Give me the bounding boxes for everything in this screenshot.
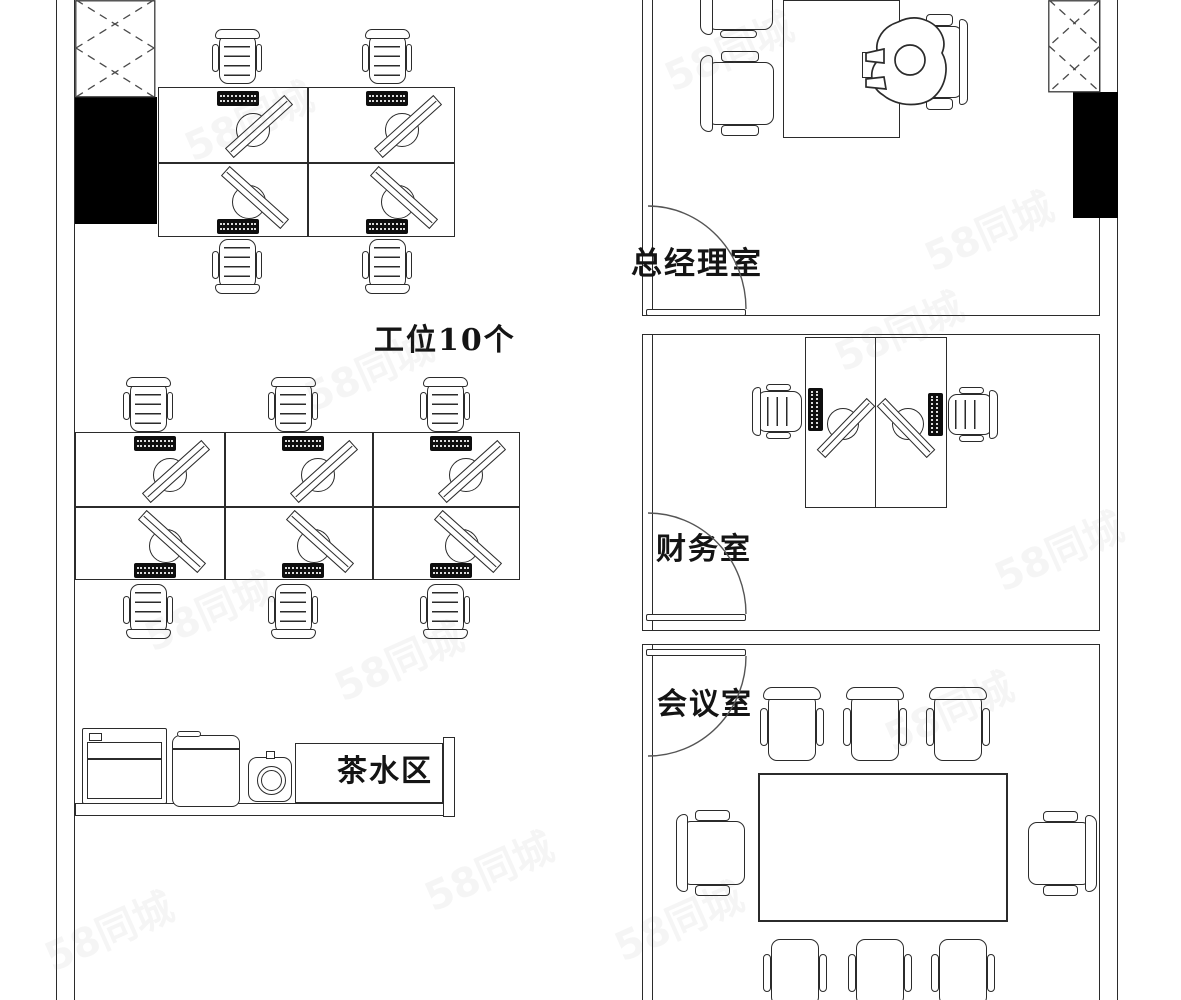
meeting-chair [926,687,990,763]
meeting-chair [1027,811,1097,896]
workstation [224,433,372,507]
meeting-chair [848,937,912,1000]
desk-cluster-top [158,87,455,237]
floor-plan: 工位10个 茶水区 [0,0,1181,1000]
workstations-area-label: 工位10个 [374,326,516,356]
meeting-chair [931,937,995,1000]
office-chair [268,377,318,433]
counter-end-panel [443,737,455,817]
door-leaf-gm [646,309,746,316]
wall-left [56,0,75,1000]
gm-desk-paper [862,52,884,78]
keyboard-icon [366,219,408,234]
office-chair [420,583,470,639]
boiler-handle [177,731,201,737]
fridge-handle [89,733,102,741]
wall-finance-meeting [642,630,1100,645]
door-leaf-meeting [646,649,746,656]
meeting-chair [843,687,907,763]
tea-counter [75,803,455,816]
sink-basin-inner [261,770,282,791]
workstation [76,433,224,507]
keyboard-icon [134,436,176,451]
workstation [372,507,520,581]
workstation [76,507,224,581]
workstation [308,163,456,237]
sink-faucet [266,751,275,759]
boiler-lid-line [173,748,239,750]
wall-black-right [1073,92,1118,218]
executive-chair [914,14,968,110]
office-chair [947,387,998,442]
office-chair [752,384,803,439]
office-chair [123,377,173,433]
keyboard-icon [430,436,472,451]
sink [248,757,292,802]
water-boiler [172,735,240,807]
desk-cluster-middle [75,432,520,580]
keyboard-icon [217,91,259,106]
keyboard-icon [217,219,259,234]
gm-office-label: 总经理室 [631,249,763,280]
hatch-opening-right [1049,0,1100,92]
workstation [159,163,307,237]
office-chair [268,583,318,639]
tea-area-label: 茶水区 [337,757,433,787]
wall-gm-finance [642,315,1100,335]
keyboard-icon [134,563,176,578]
office-chair [420,377,470,433]
keyboard-icon [282,436,324,451]
watermark: 58同城 [914,175,1062,283]
workstation [372,433,520,507]
keyboard-icon [928,393,943,436]
meeting-chair [760,687,824,763]
workstation [159,88,307,162]
office-chair [362,29,412,85]
workstation [308,88,456,162]
fridge [82,728,167,804]
finance-room-label: 财务室 [656,535,752,565]
meeting-room-label: 会议室 [657,690,753,720]
keyboard-icon [282,563,324,578]
keyboard-icon [366,91,408,106]
door-leaf-finance [646,614,746,621]
office-chair [212,238,262,294]
keyboard-icon [430,563,472,578]
fridge-shelf-line [87,758,162,760]
meeting-chair [676,810,746,896]
hatch-opening-left [76,0,155,97]
guest-chair [700,51,776,136]
meeting-chair [763,937,827,1000]
office-chair [362,238,412,294]
wall-black-left [75,97,157,224]
meeting-table [758,773,1008,922]
fridge-door [87,742,162,799]
office-chair [123,583,173,639]
guest-chair [700,0,774,38]
office-chair [212,29,262,85]
workstation [224,507,372,581]
wall-rooms-left [642,0,653,1000]
watermark: 58同城 [414,815,562,923]
keyboard-icon [808,388,823,431]
